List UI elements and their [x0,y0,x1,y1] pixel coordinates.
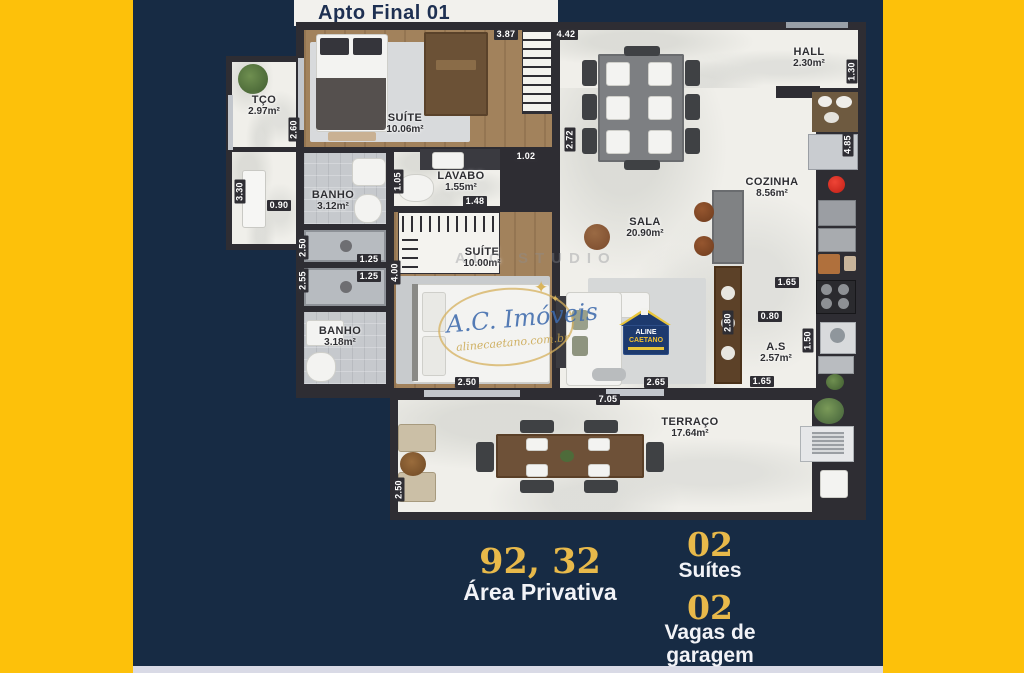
dim-sala-width: 4.42 [554,29,578,40]
lavabo-sink [432,152,464,169]
dim-tco-width: 0.90 [267,200,291,211]
dining-chair [685,94,700,120]
bread-basket [844,256,856,271]
oven-door [818,228,856,252]
shower1-drain [340,240,352,252]
place-setting [526,464,548,477]
room-label-suite1: SUÍTE 10.06m² [370,112,440,135]
badge-line-2: CAETANO [624,337,668,345]
dim-suite1-width: 3.87 [494,29,518,40]
private-area-value: 92, 32 [470,541,610,582]
suite2-closet-hatch-side [402,234,418,268]
condenser-grille [812,432,844,454]
dim-sala-bottom: 2.65 [644,377,668,388]
suite1-closet-rail [522,30,552,114]
house-logo-chimney-icon [641,308,648,315]
floor-plan-page: Apto Final 01 [0,0,1024,673]
agency-badge: ALINE CAETANO [619,308,671,354]
dining-chair [582,128,597,154]
terrace-chair [520,420,554,433]
dim-terraco-left: 2.50 [394,478,405,502]
dim-sala-left: 2.72 [565,128,576,152]
dining-chair [685,60,700,86]
bar-stool [694,236,714,256]
parking-label: Vagas de garagem [640,622,780,667]
terrace-chair [646,442,664,472]
terrace-chair [584,480,618,493]
lounge-chair [398,424,436,452]
suite2-closet-hatch-top [402,216,494,232]
dim-shower2-height: 2.55 [298,269,309,293]
dim-lavabo-top: 1.02 [514,151,538,162]
suite1-wardrobe [424,32,488,116]
laundry-bin [818,356,854,374]
pouf [584,224,610,250]
dim-as-right: 1.50 [803,329,814,353]
place-setting [606,130,630,154]
suite2-terrace-door [424,390,520,397]
suite1-pillow-left [320,38,349,55]
bowl [824,112,839,123]
place-setting [588,438,610,451]
place-setting [606,96,630,120]
agency-badge-body: ALINE CAETANO [623,325,669,355]
shower2-drain [340,281,352,293]
cutting-board [818,254,840,274]
place-setting [588,464,610,477]
badge-accent-bar [628,347,663,350]
kitchen-island [712,190,744,264]
dim-suite2-width: 2.50 [455,377,479,388]
badge-line-1: ALINE [624,328,668,337]
burner [838,298,849,309]
dining-chair [582,94,597,120]
room-label-banho2: BANHO 3.18m² [305,325,375,348]
oven-door [818,200,856,226]
washer-door [830,328,845,343]
burner [821,284,832,295]
bowl [836,96,852,108]
tco-tub [242,170,266,228]
dim-as-width: 1.65 [750,376,774,387]
dim-as-opening: 0.80 [758,311,782,322]
dim-island-height: 2.80 [723,311,734,335]
room-label-terraco: TERRAÇO 17.64m² [650,416,730,439]
banho1-sink [352,158,386,186]
place-setting [606,62,630,86]
dining-chair [624,160,660,170]
room-label-hall: HALL 2.30m² [774,46,844,69]
banho2-toilet [306,352,336,382]
dim-hall-height: 1.30 [847,60,858,84]
sparkle-icon: ✦ [534,278,548,298]
dim-shower2-width: 1.25 [357,271,381,282]
hall-vent [786,22,848,28]
sofa-pillow [572,336,588,356]
room-label-lavabo: LAVABO 1.55m² [426,170,496,193]
studio-watermark: ALC STUDIO [455,250,617,267]
plate [721,346,735,360]
dining-chair [582,60,597,86]
red-knob [828,176,845,193]
dim-cozinha-width: 1.65 [775,277,799,288]
left-yellow-band [0,0,133,673]
plant-icon [826,374,844,390]
plant-icon [396,396,428,424]
suite1-wardrobe-handle [436,60,476,70]
plant-icon [814,398,844,424]
burner [838,284,849,295]
suite2-headboard [412,284,418,381]
dim-shower1-height: 2.50 [298,236,309,260]
dim-tco-height: 3.30 [235,180,246,204]
suite1-pillow-right [353,38,382,55]
terrace-chair [584,420,618,433]
room-label-banho1: BANHO 3.12m² [298,189,368,212]
bar-stool [694,202,714,222]
room-label-sala: SALA 20.90m² [610,216,680,239]
terrace-chair [476,442,494,472]
dim-lavabo-left: 1.05 [393,170,404,194]
dim-cozinha-right: 4.85 [843,133,854,157]
laundry-tub [820,470,848,498]
plate [721,286,735,300]
dim-lavabo-width: 1.48 [463,196,487,207]
right-yellow-band [883,0,1024,673]
burner [821,298,832,309]
dim-shower1-width: 1.25 [357,254,381,265]
room-label-as: A.S 2.57m² [741,341,811,364]
sparkle-icon: ✦ [551,294,559,305]
dining-chair [624,46,660,56]
dim-terraco-width: 7.05 [596,394,620,405]
sofa-footrest [592,368,626,381]
place-setting [648,130,672,154]
dining-chair [685,128,700,154]
dim-suite2-left: 4.00 [390,261,401,285]
suites-label: Suítes [660,560,760,583]
plant-icon [238,64,268,94]
private-area-label: Área Privativa [460,580,620,605]
place-setting [648,62,672,86]
terrace-chair [520,480,554,493]
side-table [400,452,426,476]
centerpiece-plant-icon [560,450,574,462]
room-label-tco: TÇO 2.97m² [229,94,299,117]
dim-suite1-left: 2.60 [289,118,300,142]
place-setting [526,438,548,451]
room-label-cozinha: COZINHA 8.56m² [737,176,807,199]
place-setting [648,96,672,120]
suite1-bench [328,132,376,141]
bowl [818,96,832,107]
